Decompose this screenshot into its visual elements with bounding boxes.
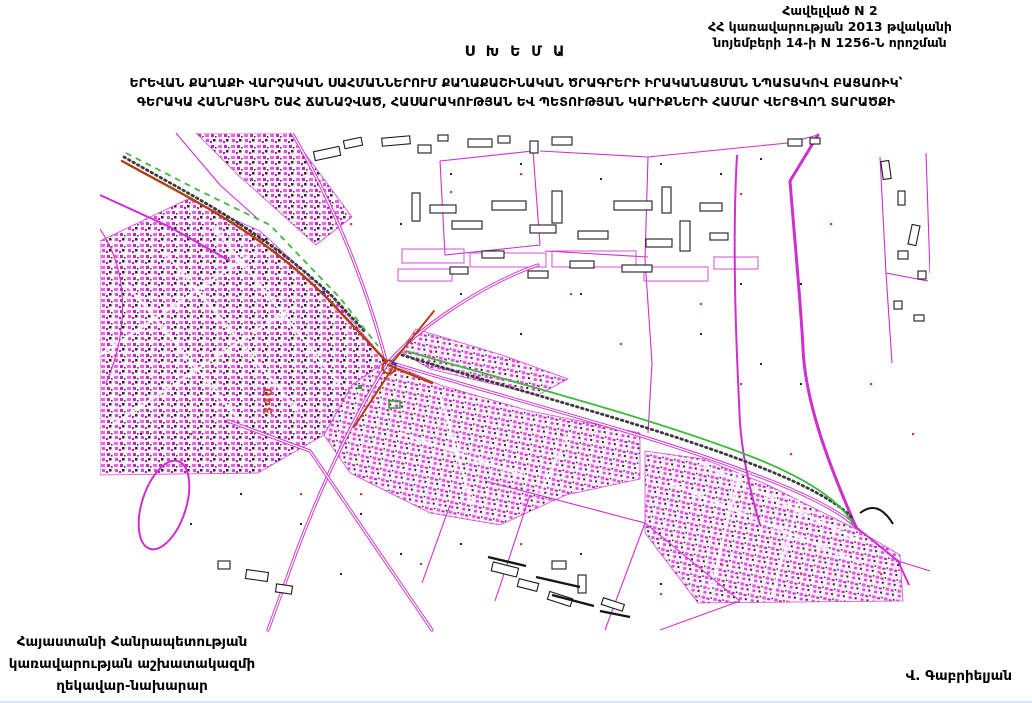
signature-line-3: ղեկավար-նախարար <box>8 675 256 697</box>
blue-dot <box>322 291 325 294</box>
page-subtitle: ԵՐԵՎԱՆ ՔԱՂԱՔԻ ՎԱՐՉԱԿԱՆ ՍԱՀՄԱՆՆԵՐՈՒՄ ՔԱՂԱ… <box>0 74 1032 111</box>
signer-name: Վ. Գաբրիելյան <box>906 668 1012 684</box>
document-page: { "document": { "annex": { "line1": "Հավ… <box>0 0 1032 703</box>
green-dot <box>358 385 362 389</box>
map-arc <box>860 508 893 524</box>
cadastral-map-image: 340 <box>100 133 930 632</box>
subtitle-line-1: ԵՐԵՎԱՆ ՔԱՂԱՔԻ ՎԱՐՉԱԿԱՆ ՍԱՀՄԱՆՆԵՐՈՒՄ ՔԱՂԱ… <box>0 74 1032 93</box>
page-title: Ս Խ Ե Մ Ա <box>0 44 1032 60</box>
annex-line-2: ՀՀ կառավարության 2013 թվականի <box>695 19 965 35</box>
signature-line-2: կառավարության աշխատակազմի <box>8 653 256 675</box>
signature-line-1: Հայաստանի Հանրապետության <box>8 631 256 653</box>
annex-line-1: Հավելված N 2 <box>695 3 965 19</box>
subtitle-line-2: ԳԵՐԱԿԱ ՀԱՆՐԱՅԻՆ ՇԱՀ ՃԱՆԱՉՎԱԾ, ՀԱՍԱՐԱԿՈՒԹ… <box>0 93 1032 112</box>
parcel-340-label: 340 <box>261 387 275 415</box>
signature-block: Հայաստանի Հանրապետության կառավարության ա… <box>8 631 256 697</box>
